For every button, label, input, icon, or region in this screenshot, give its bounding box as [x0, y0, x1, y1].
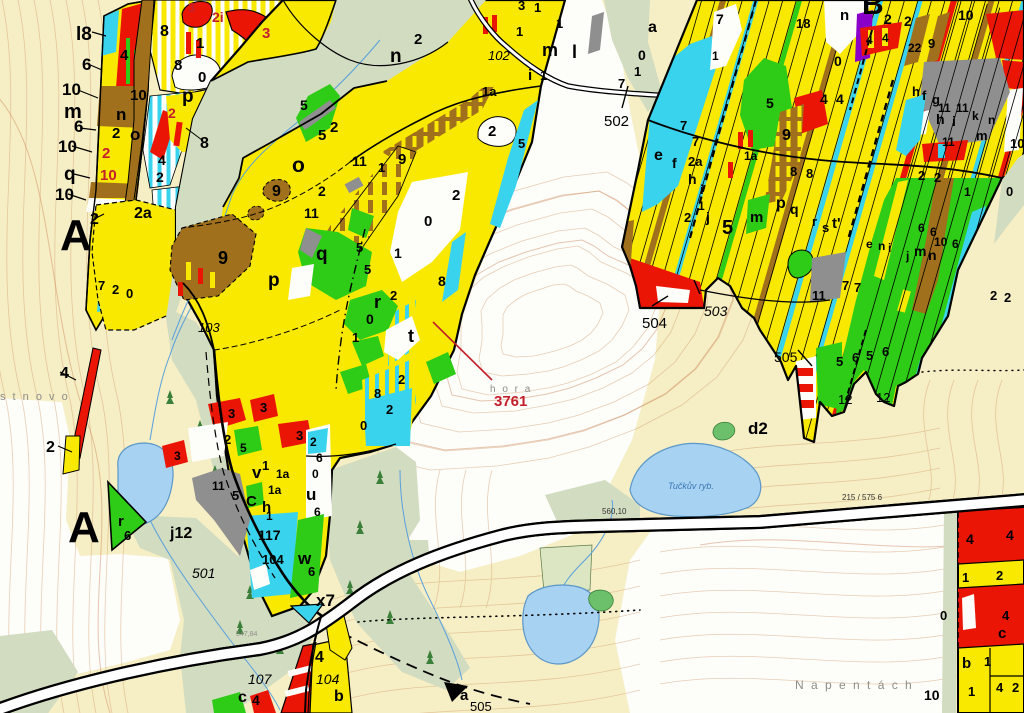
svg-text:7: 7 — [716, 11, 724, 27]
svg-text:10: 10 — [1010, 136, 1024, 151]
svg-text:1: 1 — [712, 49, 719, 63]
svg-text:a: a — [648, 19, 657, 36]
svg-text:9: 9 — [928, 36, 935, 51]
svg-text:2: 2 — [1012, 680, 1019, 695]
svg-text:0: 0 — [360, 418, 367, 433]
svg-text:8: 8 — [174, 57, 182, 74]
svg-text:6: 6 — [918, 221, 925, 235]
svg-text:3: 3 — [260, 400, 267, 415]
svg-text:m: m — [976, 128, 988, 143]
svg-text:505: 505 — [470, 699, 492, 713]
svg-text:n: n — [116, 105, 126, 124]
svg-text:7: 7 — [680, 118, 687, 133]
svg-text:3: 3 — [296, 428, 303, 443]
svg-text:u: u — [306, 485, 316, 504]
svg-text:0: 0 — [638, 47, 646, 63]
svg-text:6: 6 — [124, 528, 131, 543]
svg-text:2: 2 — [46, 439, 55, 456]
svg-text:l: l — [572, 42, 577, 62]
svg-text:7: 7 — [618, 76, 625, 91]
svg-text:1: 1 — [266, 509, 273, 523]
svg-text:k: k — [972, 109, 979, 123]
svg-text:B: B — [862, 0, 884, 21]
svg-text:8: 8 — [160, 23, 169, 40]
svg-text:l8: l8 — [76, 24, 92, 45]
svg-text:4: 4 — [158, 152, 166, 168]
svg-text:502: 502 — [604, 113, 629, 130]
svg-text:102: 102 — [488, 48, 510, 63]
svg-text:4: 4 — [836, 91, 844, 107]
svg-text:2: 2 — [112, 125, 120, 142]
svg-text:4: 4 — [866, 33, 873, 47]
svg-text:3: 3 — [228, 406, 235, 421]
svg-text:1: 1 — [262, 458, 269, 473]
svg-text:h: h — [936, 111, 945, 127]
svg-text:2: 2 — [318, 183, 326, 199]
svg-text:q: q — [64, 164, 76, 185]
svg-text:r: r — [812, 214, 817, 229]
svg-text:N a p e n t á c h: N a p e n t á c h — [795, 678, 914, 692]
svg-text:2: 2 — [168, 105, 176, 121]
svg-text:C: C — [246, 493, 257, 510]
svg-text:4: 4 — [1002, 608, 1010, 623]
svg-text:o: o — [292, 154, 305, 177]
svg-text:9: 9 — [272, 183, 281, 200]
svg-text:1: 1 — [634, 64, 641, 79]
svg-text:10: 10 — [958, 7, 974, 23]
svg-text:A: A — [60, 211, 92, 260]
svg-text:6: 6 — [852, 350, 859, 365]
svg-text:5: 5 — [356, 240, 363, 255]
svg-text:c: c — [998, 625, 1006, 642]
svg-text:2: 2 — [452, 187, 460, 204]
svg-text:7: 7 — [98, 278, 105, 293]
svg-text:4: 4 — [966, 531, 974, 547]
svg-text:4: 4 — [252, 692, 260, 708]
svg-text:i: i — [528, 67, 532, 84]
svg-text:7: 7 — [854, 280, 861, 295]
svg-text:n: n — [390, 46, 402, 67]
svg-text:n: n — [988, 113, 995, 127]
svg-text:117: 117 — [258, 527, 281, 543]
svg-text:5: 5 — [766, 95, 774, 111]
svg-text:1: 1 — [378, 160, 385, 175]
svg-text:4: 4 — [60, 365, 69, 382]
svg-text:3: 3 — [518, 0, 525, 13]
svg-text:e: e — [654, 147, 663, 164]
svg-text:10: 10 — [130, 87, 147, 104]
svg-text:6: 6 — [316, 451, 323, 465]
svg-text:2i: 2i — [212, 9, 224, 25]
svg-text:i: i — [952, 113, 956, 129]
svg-text:6: 6 — [930, 225, 937, 239]
svg-text:2: 2 — [156, 169, 164, 185]
svg-text:2: 2 — [884, 11, 892, 27]
svg-text:547,84: 547,84 — [236, 631, 258, 638]
svg-text:p: p — [268, 270, 280, 291]
svg-text:504: 504 — [642, 315, 667, 332]
svg-text:2: 2 — [112, 282, 119, 297]
svg-text:1: 1 — [984, 654, 991, 669]
svg-text:f: f — [672, 155, 677, 171]
svg-text:5: 5 — [240, 441, 247, 455]
svg-text:104: 104 — [262, 552, 284, 567]
svg-text:503: 503 — [704, 303, 728, 319]
svg-text:8: 8 — [374, 386, 381, 401]
svg-text:12: 12 — [876, 390, 890, 405]
svg-text:r: r — [374, 292, 381, 312]
svg-text:2: 2 — [904, 13, 912, 29]
svg-text:6: 6 — [308, 564, 315, 579]
svg-text:h: h — [912, 84, 920, 99]
svg-text:0: 0 — [834, 53, 842, 69]
svg-text:11: 11 — [212, 479, 225, 493]
svg-text:i: i — [700, 182, 704, 197]
svg-text:j12: j12 — [169, 525, 192, 542]
svg-text:6: 6 — [882, 344, 889, 359]
svg-text:0: 0 — [366, 311, 374, 327]
svg-text:4: 4 — [996, 680, 1004, 695]
svg-text:1: 1 — [698, 199, 705, 213]
svg-text:2: 2 — [310, 435, 317, 449]
svg-text:1: 1 — [968, 684, 975, 699]
svg-text:Tučkův ryb.: Tučkův ryb. — [668, 481, 714, 491]
svg-text:4: 4 — [120, 47, 129, 64]
svg-text:A: A — [68, 503, 100, 552]
svg-text:1: 1 — [352, 330, 359, 345]
svg-text:1a: 1a — [268, 483, 282, 497]
svg-text:22: 22 — [908, 41, 922, 55]
svg-text:5: 5 — [866, 348, 873, 363]
svg-text:18: 18 — [796, 16, 810, 31]
svg-text:n: n — [878, 239, 885, 253]
svg-text:v: v — [252, 463, 262, 482]
svg-text:2a: 2a — [688, 154, 703, 169]
svg-text:b: b — [334, 688, 344, 705]
svg-text:11: 11 — [956, 101, 969, 115]
svg-text:10: 10 — [924, 687, 940, 703]
svg-text:1: 1 — [962, 570, 969, 585]
svg-text:6: 6 — [952, 237, 959, 251]
svg-text:1: 1 — [394, 245, 402, 261]
svg-text:i: i — [888, 241, 891, 255]
svg-text:p: p — [776, 195, 786, 212]
svg-text:11: 11 — [352, 153, 367, 169]
svg-text:o: o — [130, 125, 140, 144]
svg-text:2: 2 — [386, 402, 393, 417]
svg-text:1: 1 — [516, 24, 523, 39]
svg-text:b: b — [962, 655, 971, 672]
svg-text:e: e — [866, 237, 873, 251]
svg-text:9: 9 — [218, 248, 228, 268]
svg-text:2: 2 — [390, 288, 397, 303]
svg-text:8: 8 — [438, 273, 446, 289]
svg-text:1a: 1a — [744, 149, 758, 163]
svg-text:10: 10 — [100, 167, 117, 184]
svg-text:2: 2 — [398, 372, 405, 387]
svg-text:2: 2 — [90, 211, 99, 228]
svg-text:12: 12 — [838, 392, 852, 407]
svg-text:4: 4 — [820, 91, 828, 107]
svg-text:j: j — [905, 249, 909, 263]
svg-text:1: 1 — [196, 35, 204, 52]
svg-text:m: m — [914, 243, 926, 259]
svg-text:1: 1 — [534, 0, 541, 15]
svg-text:103: 103 — [198, 320, 220, 335]
svg-text:6: 6 — [74, 117, 83, 136]
svg-text:3761: 3761 — [494, 393, 527, 410]
svg-text:104: 104 — [316, 671, 340, 687]
svg-text:5: 5 — [518, 136, 525, 151]
svg-text:11: 11 — [812, 288, 826, 303]
svg-text:1: 1 — [556, 16, 563, 31]
svg-text:d2: d2 — [748, 419, 768, 438]
svg-text:1: 1 — [964, 185, 971, 199]
svg-text:2: 2 — [996, 568, 1003, 583]
svg-text:t': t' — [832, 215, 841, 232]
svg-text:m: m — [750, 209, 763, 226]
svg-text:0: 0 — [126, 286, 133, 301]
svg-text:a: a — [460, 687, 469, 704]
svg-text:0: 0 — [198, 69, 206, 86]
svg-text:8: 8 — [200, 135, 209, 152]
svg-text:f: f — [922, 88, 927, 103]
svg-text:h: h — [688, 171, 697, 187]
svg-text:0: 0 — [940, 608, 947, 623]
svg-text:5: 5 — [836, 354, 843, 369]
svg-text:2: 2 — [224, 432, 231, 447]
svg-text:s: s — [822, 220, 829, 235]
svg-text:4: 4 — [1006, 527, 1014, 543]
svg-text:2: 2 — [488, 123, 496, 140]
svg-text:5: 5 — [722, 217, 733, 239]
svg-text:c: c — [238, 689, 247, 706]
svg-text:8: 8 — [806, 166, 813, 181]
svg-text:8: 8 — [790, 164, 797, 179]
svg-text:0: 0 — [424, 213, 432, 230]
svg-text:7: 7 — [692, 134, 699, 149]
svg-text:n: n — [840, 7, 849, 24]
svg-text:10: 10 — [62, 80, 81, 99]
svg-text:9: 9 — [398, 151, 406, 168]
svg-text:3: 3 — [262, 25, 270, 42]
svg-text:5: 5 — [300, 97, 308, 113]
svg-text:t: t — [408, 326, 414, 346]
svg-text:2: 2 — [918, 168, 925, 183]
svg-text:3: 3 — [188, 0, 195, 15]
svg-text:0: 0 — [312, 467, 319, 481]
svg-text:11: 11 — [304, 205, 319, 221]
svg-text:11: 11 — [942, 135, 955, 149]
svg-text:2: 2 — [102, 145, 110, 162]
svg-text:2: 2 — [330, 119, 338, 136]
svg-text:2: 2 — [934, 170, 941, 185]
svg-text:7: 7 — [842, 278, 849, 293]
svg-text:2: 2 — [1004, 290, 1011, 305]
svg-text:1: 1 — [540, 68, 547, 83]
svg-text:0: 0 — [1006, 184, 1013, 199]
svg-text:560,10: 560,10 — [602, 507, 627, 516]
svg-text:2: 2 — [414, 31, 422, 48]
svg-text:5: 5 — [318, 127, 326, 144]
svg-text:x7: x7 — [316, 591, 335, 610]
svg-text:j: j — [705, 209, 710, 225]
svg-text:6: 6 — [314, 505, 321, 519]
svg-text:5: 5 — [364, 262, 371, 277]
svg-text:2: 2 — [684, 210, 691, 225]
svg-text:1a: 1a — [276, 467, 290, 481]
svg-text:m: m — [542, 40, 558, 60]
svg-text:1a: 1a — [482, 84, 497, 99]
svg-text:n: n — [928, 247, 937, 263]
svg-text:501: 501 — [192, 565, 215, 581]
svg-text:9: 9 — [782, 127, 791, 144]
svg-text:4: 4 — [315, 649, 324, 666]
svg-text:4: 4 — [882, 31, 889, 45]
svg-text:2a: 2a — [134, 205, 152, 222]
svg-text:s t n o v o: s t n o v o — [0, 391, 70, 403]
svg-text:2: 2 — [990, 288, 997, 303]
svg-text:5: 5 — [232, 488, 239, 503]
svg-text:215 / 575 6: 215 / 575 6 — [842, 493, 883, 502]
svg-text:3: 3 — [174, 449, 181, 463]
svg-text:107: 107 — [248, 671, 273, 687]
svg-text:q: q — [316, 244, 328, 265]
svg-text:p: p — [182, 86, 194, 107]
svg-text:q: q — [790, 201, 799, 217]
svg-text:h o r a: h o r a — [490, 384, 532, 395]
svg-text:505: 505 — [774, 349, 798, 365]
